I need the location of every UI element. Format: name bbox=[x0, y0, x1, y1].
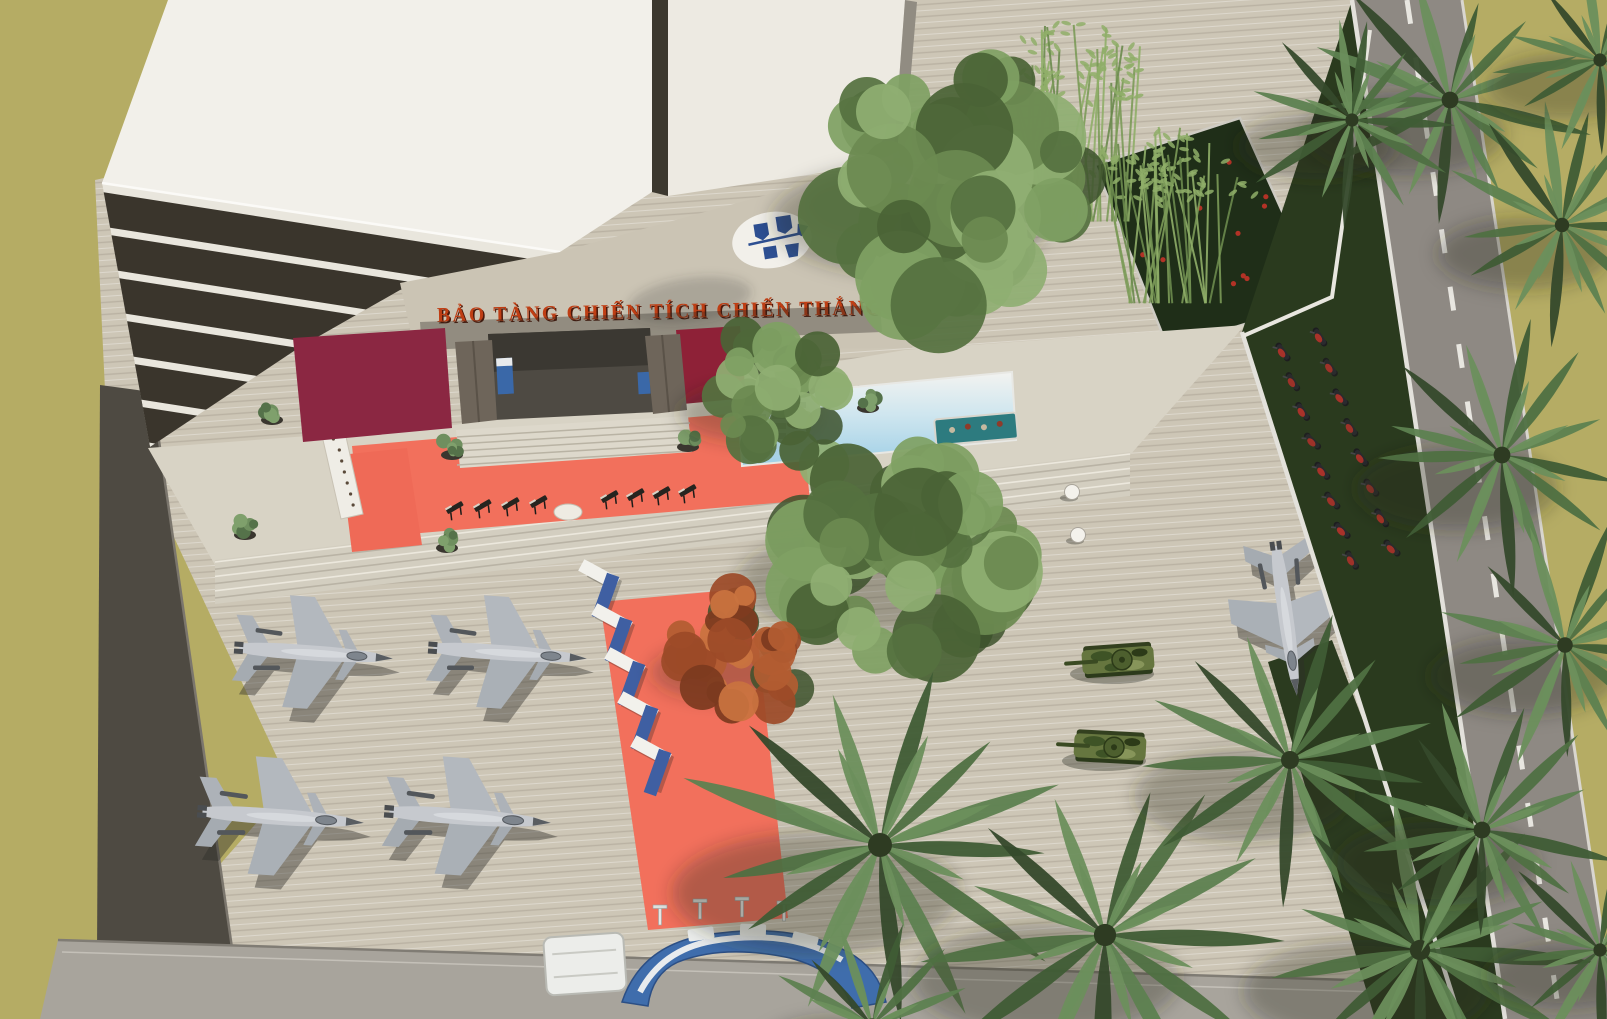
interior-wall-magenta bbox=[293, 328, 452, 442]
info-desk bbox=[637, 372, 650, 395]
gate-white-block bbox=[543, 932, 627, 995]
sphere-bollard bbox=[1065, 485, 1080, 500]
reception-desk bbox=[496, 358, 514, 395]
museum-aerial-rendering: BẢO TÀNG CHIẾN TÍCH CHIẾN THẮNG BẢO TÀNG… bbox=[0, 0, 1607, 1019]
entrance-hall-shadow bbox=[488, 328, 652, 372]
sphere-bollard bbox=[1071, 528, 1086, 543]
scene-canvas: BẢO TÀNG CHIẾN TÍCH CHIẾN THẮNG BẢO TÀNG… bbox=[0, 0, 1607, 1019]
roof-notch bbox=[652, 0, 668, 196]
